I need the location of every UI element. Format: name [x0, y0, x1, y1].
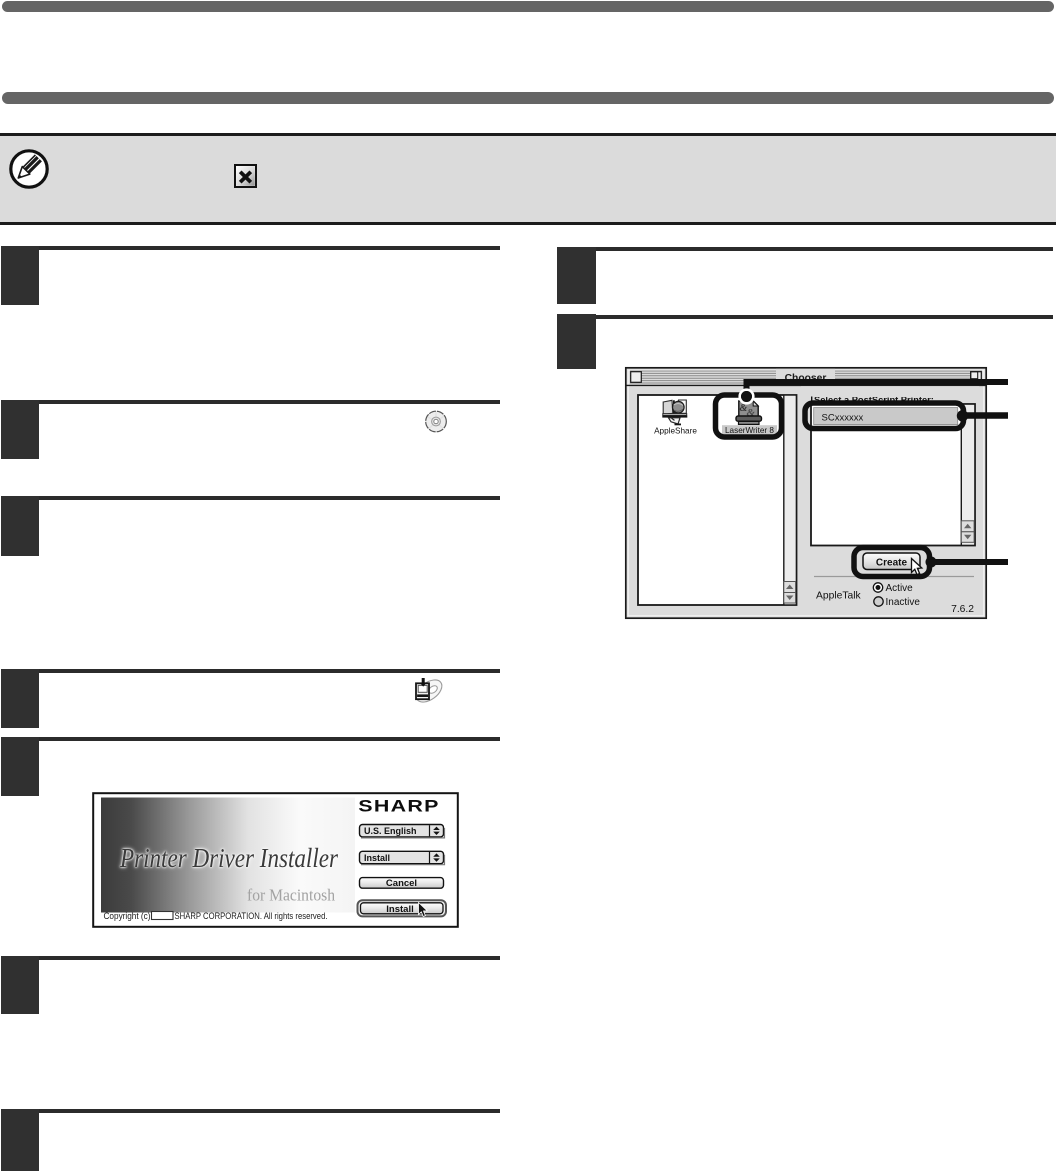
svg-text:SCxxxxxx: SCxxxxxx [822, 413, 864, 424]
svg-text:Inactive: Inactive [886, 597, 921, 608]
svg-text:AppleTalk: AppleTalk [816, 591, 861, 602]
svg-text:SHARP CORPORATION. All rights: SHARP CORPORATION. All rights reserved. [175, 911, 328, 921]
svg-text:7.6.2: 7.6.2 [951, 604, 974, 615]
svg-text:Active: Active [886, 583, 914, 594]
svg-text:Printer Driver Installer: Printer Driver Installer [119, 843, 338, 873]
svg-text:AppleShare: AppleShare [654, 427, 697, 436]
svg-text:SHARP: SHARP [358, 798, 440, 816]
svg-text:U.S. English: U.S. English [364, 826, 417, 836]
svg-text:Install: Install [386, 904, 413, 915]
svg-text:Create: Create [876, 558, 908, 569]
svg-text:for Macintosh: for Macintosh [247, 886, 335, 905]
svg-text:Install: Install [364, 853, 390, 863]
svg-text:Cancel: Cancel [386, 878, 417, 889]
svg-text:Copyright (c): Copyright (c) [104, 911, 151, 921]
svg-text:LaserWriter 8: LaserWriter 8 [725, 426, 774, 435]
